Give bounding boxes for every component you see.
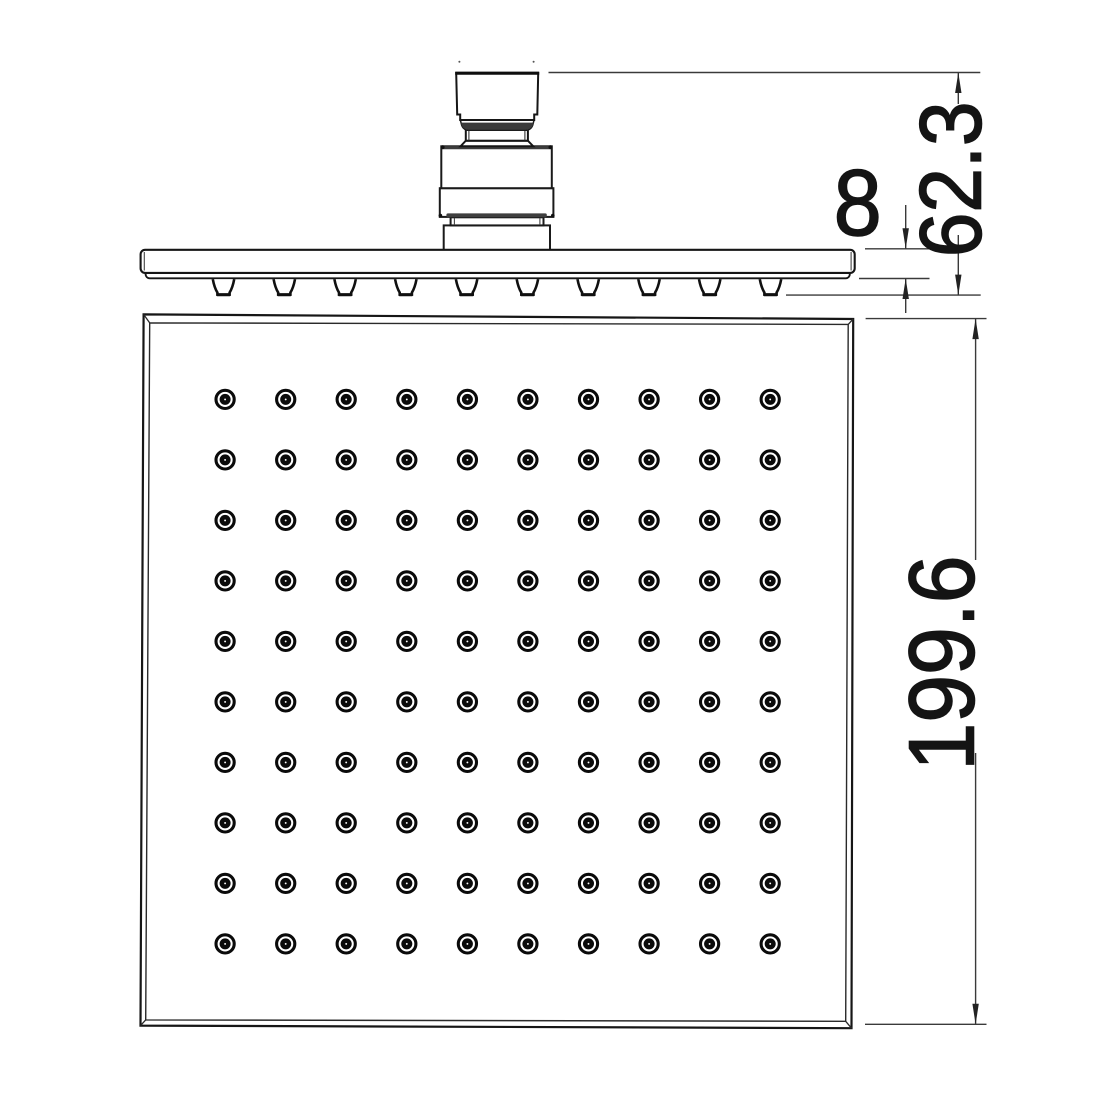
svg-text:8: 8 xyxy=(834,151,882,256)
svg-text:199.6: 199.6 xyxy=(890,555,994,770)
svg-text:62.3: 62.3 xyxy=(901,101,999,257)
